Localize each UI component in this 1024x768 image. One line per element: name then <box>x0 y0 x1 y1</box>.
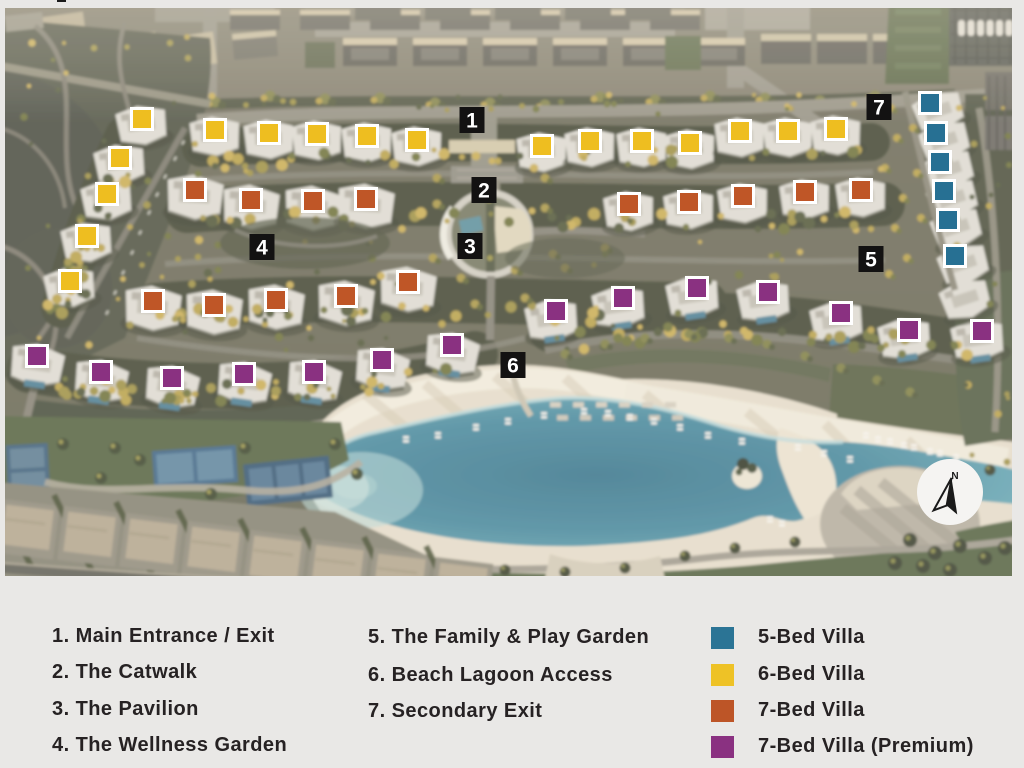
svg-text:N: N <box>951 471 958 482</box>
svg-text:3: 3 <box>464 236 476 259</box>
svg-text:6: 6 <box>507 355 519 378</box>
svg-text:1: 1 <box>466 110 478 133</box>
svg-text:5: 5 <box>865 249 877 272</box>
svg-text:7: 7 <box>873 97 885 120</box>
svg-text:2: 2 <box>478 180 490 203</box>
svg-text:4: 4 <box>256 237 268 260</box>
